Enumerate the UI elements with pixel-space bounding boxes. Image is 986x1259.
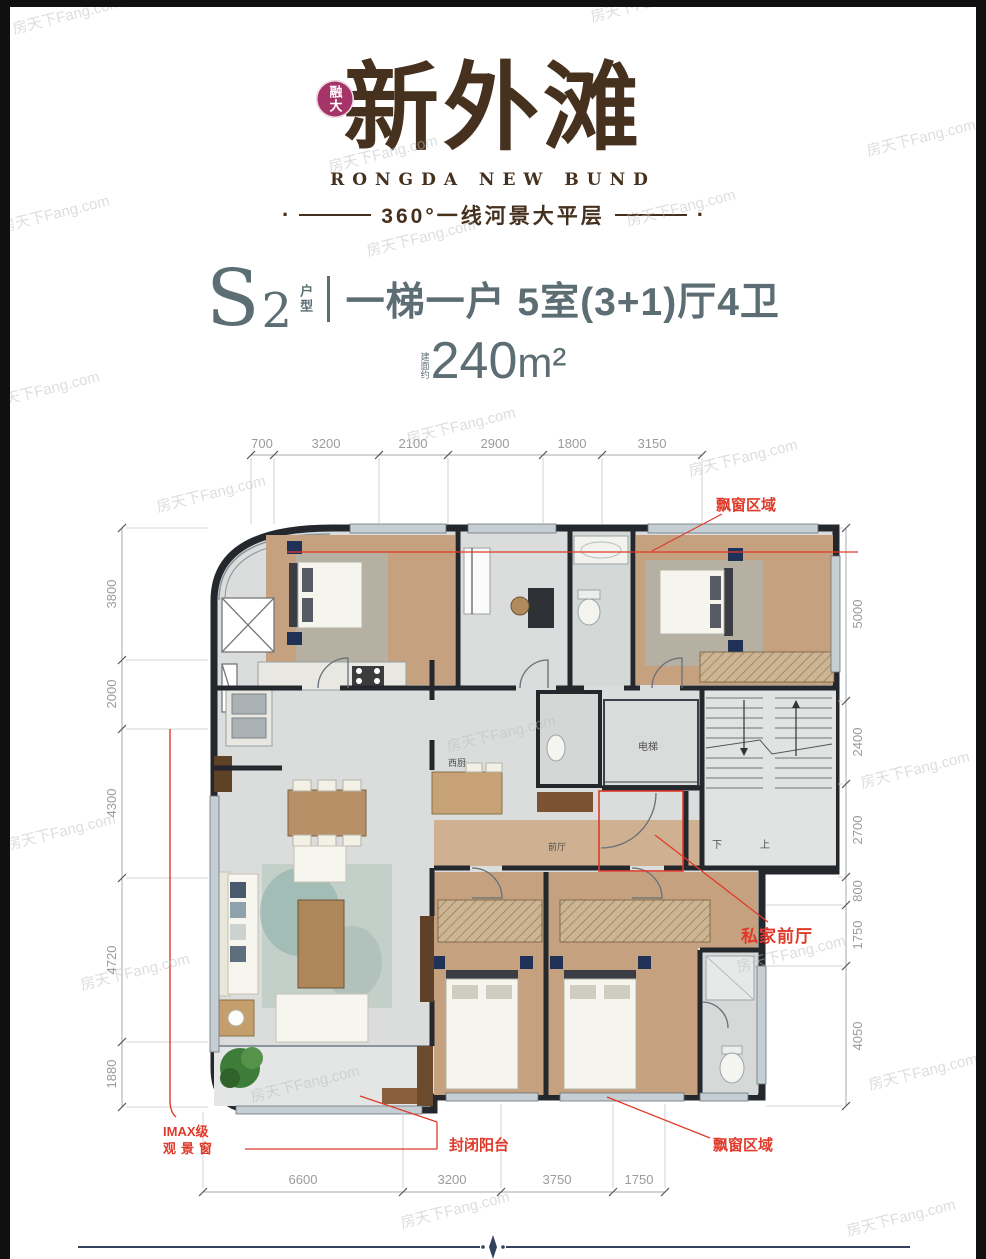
watermark: 房天下Fang.com [867, 1050, 979, 1094]
watermark: 房天下Fang.com [845, 1196, 957, 1240]
door-arcs [318, 658, 728, 1028]
tagline-rule-right [615, 214, 687, 217]
west-kitchen-island: 西厨 [432, 758, 502, 814]
stair-up-label: 上 [760, 839, 770, 851]
dim-right-5: 1750 [850, 921, 865, 950]
dim-left-1: 3800 [104, 580, 119, 609]
bedroom-top-left [287, 541, 388, 677]
bay-window-top-label: 飘窗区域 [716, 496, 776, 514]
dimensions: 700 3200 2100 2900 1800 3150 3800 2000 4… [104, 436, 865, 1196]
watermark: 房天下Fang.com [687, 436, 799, 480]
stairwell: 下 上 [706, 694, 832, 851]
footer-rule [78, 1235, 910, 1259]
bedroom-bottom-left [432, 900, 542, 1089]
screen-edge-left [0, 0, 10, 1259]
study-room [464, 548, 554, 628]
corner-window-bottom-left [219, 1068, 256, 1104]
screen-edge-top [0, 0, 986, 7]
bathroom-top [574, 536, 628, 625]
tagline-text: 360°一线河景大平层 [381, 200, 604, 230]
living-room [216, 846, 392, 1042]
dim-right-4: 800 [850, 880, 865, 902]
windows [210, 524, 840, 1114]
red-annotation-labels: 飘窗区域 私家前厅 IMAX级 观景窗 封闭阳台 飘窗区域 [163, 496, 813, 1156]
screenshot-stage: 新外滩 融大 RONGDA NEW BUND · 360°一线河景大平层 · S… [0, 0, 986, 1259]
footer-ornament [489, 1235, 497, 1259]
watermark: 房天下Fang.com [155, 472, 267, 516]
elevator: 电梯 [604, 700, 698, 786]
dim-top-6: 3150 [638, 436, 667, 451]
dim-top-4: 2900 [481, 436, 510, 451]
watermark: 房天下Fang.com [399, 1188, 511, 1232]
dim-left-2: 2000 [104, 680, 119, 709]
dining-set [288, 780, 366, 846]
dim-right-2: 2400 [850, 728, 865, 757]
unit-model-number: 2 [262, 292, 293, 330]
logo-title: 新外滩 [0, 58, 986, 159]
shaft-box [222, 598, 274, 712]
master-bathroom [706, 956, 754, 1083]
bay-window-bottom-label: 飘窗区域 [713, 1136, 773, 1154]
dim-right-6: 4050 [850, 1022, 865, 1051]
imax-window-label-1: IMAX级 [163, 1124, 210, 1139]
watermark: 房天下Fang.com [405, 404, 517, 448]
wood-floors [266, 535, 833, 1095]
tagline-rule-left [299, 214, 371, 217]
brand-badge: 融大 [316, 80, 354, 118]
private-front-hall-label: 私家前厅 [741, 926, 813, 946]
unit-area-row: 建面约 240 m² [0, 338, 986, 385]
dim-top-2: 3200 [312, 436, 341, 451]
stair-down-label: 下 [712, 840, 722, 851]
dim-right-3: 2700 [850, 816, 865, 845]
area-unit: m² [517, 342, 566, 384]
enclosed-balcony-label: 封闭阳台 [449, 1136, 509, 1154]
corner-window-top-left-2 [225, 540, 330, 600]
red-annotations [170, 514, 858, 1149]
dim-top-5: 1800 [558, 436, 587, 451]
hall-door-panel [420, 916, 434, 1002]
interior-walls [213, 531, 836, 1095]
dim-bottom-2: 3200 [438, 1172, 467, 1187]
dim-bottom-3: 3750 [543, 1172, 572, 1187]
watermark: 房天下Fang.com [445, 712, 557, 756]
balcony-wall-panel [417, 1046, 433, 1106]
floor-plan: 电梯 下 上 [210, 524, 840, 1114]
watermark: 房天下Fang.com [735, 932, 847, 976]
dim-bottom-4: 1750 [625, 1172, 654, 1187]
powder-room [537, 692, 600, 812]
west-kitchen-label: 西厨 [448, 758, 466, 768]
logo-subtitle: RONGDA NEW BUND [0, 170, 986, 190]
unit-headline: 一梯一户 5室(3+1)厅4卫 [346, 271, 780, 327]
watermark: 房天下Fang.com [5, 810, 117, 854]
unit-type-row: S 2 户型 一梯一户 5室(3+1)厅4卫 [0, 266, 986, 332]
corner-window-top-left [219, 534, 330, 600]
tile-floors [214, 532, 836, 1106]
bedroom-bottom-right [550, 900, 710, 1089]
screen-edge-right [976, 0, 986, 1259]
unit-divider [327, 276, 330, 322]
imax-window-label-2: 观景窗 [163, 1141, 217, 1156]
watermark: 房天下Fang.com [859, 748, 971, 792]
dim-left-3: 4300 [104, 789, 119, 818]
kitchen [214, 662, 406, 792]
dim-right-1: 5000 [850, 600, 865, 629]
watermark: 房天下Fang.com [79, 950, 191, 994]
dim-top-1: 700 [251, 436, 273, 451]
unit-model-label: 户型 [296, 284, 315, 314]
logo-tagline: · 360°一线河景大平层 · [0, 200, 986, 230]
area-prefix: 建面约 [420, 352, 429, 379]
dim-bottom-1: 6600 [289, 1172, 318, 1187]
dim-left-4: 4720 [104, 946, 119, 975]
unit-model-letter: S [206, 266, 259, 332]
area-value: 240 [431, 338, 518, 385]
front-hall-label: 前厅 [548, 841, 566, 852]
outer-walls [214, 528, 836, 1110]
bedroom-top-right [645, 548, 834, 682]
elevator-label: 电梯 [638, 740, 658, 753]
dim-top-3: 2100 [399, 436, 428, 451]
watermark: 房天下Fang.com [249, 1062, 361, 1106]
dim-left-5: 1880 [104, 1060, 119, 1089]
balcony [214, 1046, 430, 1104]
